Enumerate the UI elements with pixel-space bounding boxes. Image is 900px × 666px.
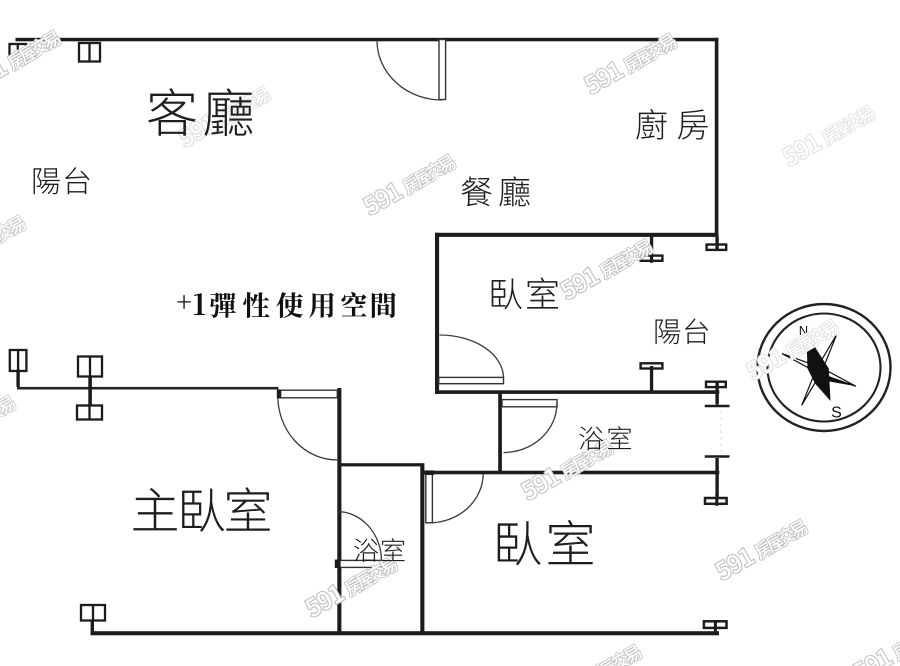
svg-text:S: S: [831, 405, 842, 422]
